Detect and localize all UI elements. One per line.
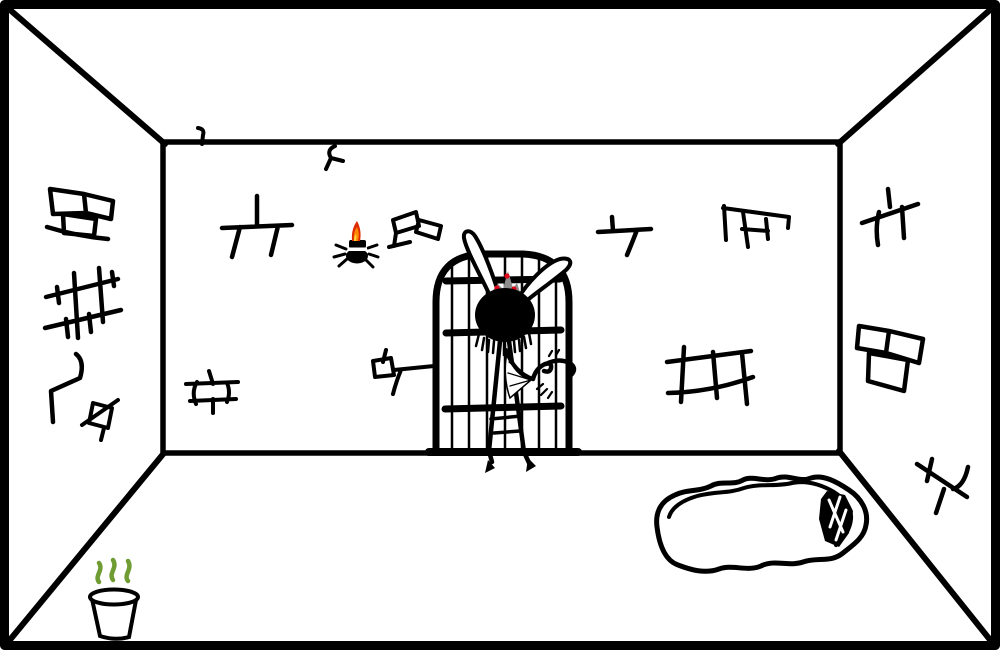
crown-jewel-top: [504, 273, 509, 278]
floor-rug-hole[interactable]: [657, 477, 867, 571]
corner-edge-top-right: [838, 9, 991, 144]
creature-left-ankle: [489, 451, 492, 462]
brick-cluster-left-top: [47, 189, 113, 239]
stink-line-1: [98, 563, 101, 582]
brick-hash-left-middle: [45, 268, 121, 338]
corner-edge-bottom-right: [839, 451, 991, 641]
brick-mark-bottom-left: [186, 371, 238, 413]
spider-with-candle[interactable]: [334, 221, 378, 267]
brick-cluster-right: [857, 326, 923, 391]
brick-mark-left-of-door: [389, 212, 441, 247]
scene-drawing: [0, 0, 1000, 650]
brick-hash-right-top: [862, 189, 918, 245]
right-wall-marks: [857, 189, 968, 513]
left-wall-marks: [45, 189, 121, 440]
crack-x-mark-right: [917, 459, 968, 513]
spider-white-band: [348, 248, 367, 252]
wall-crack-left: [51, 354, 82, 422]
ceiling-crack-large: [326, 146, 343, 169]
crack-table-mark-left: [222, 196, 292, 257]
creature-head: [475, 288, 535, 342]
spider-head: [349, 240, 366, 248]
brick-mark-door-side: [373, 350, 434, 394]
stinky-bucket[interactable]: [90, 560, 138, 639]
brick-hash-bottom-right: [667, 347, 753, 404]
stink-line-2: [112, 560, 115, 580]
corner-edge-top-left: [9, 9, 165, 144]
crack-table-mark-right: [598, 217, 651, 255]
brick-mark-top-right: [723, 206, 789, 247]
stink-line-3: [127, 561, 130, 581]
bucket-rim: [90, 590, 138, 605]
corner-edge-bottom-left: [9, 453, 164, 641]
scene-canvas: [0, 0, 1000, 650]
brick-hash-left-bottom: [82, 400, 118, 440]
